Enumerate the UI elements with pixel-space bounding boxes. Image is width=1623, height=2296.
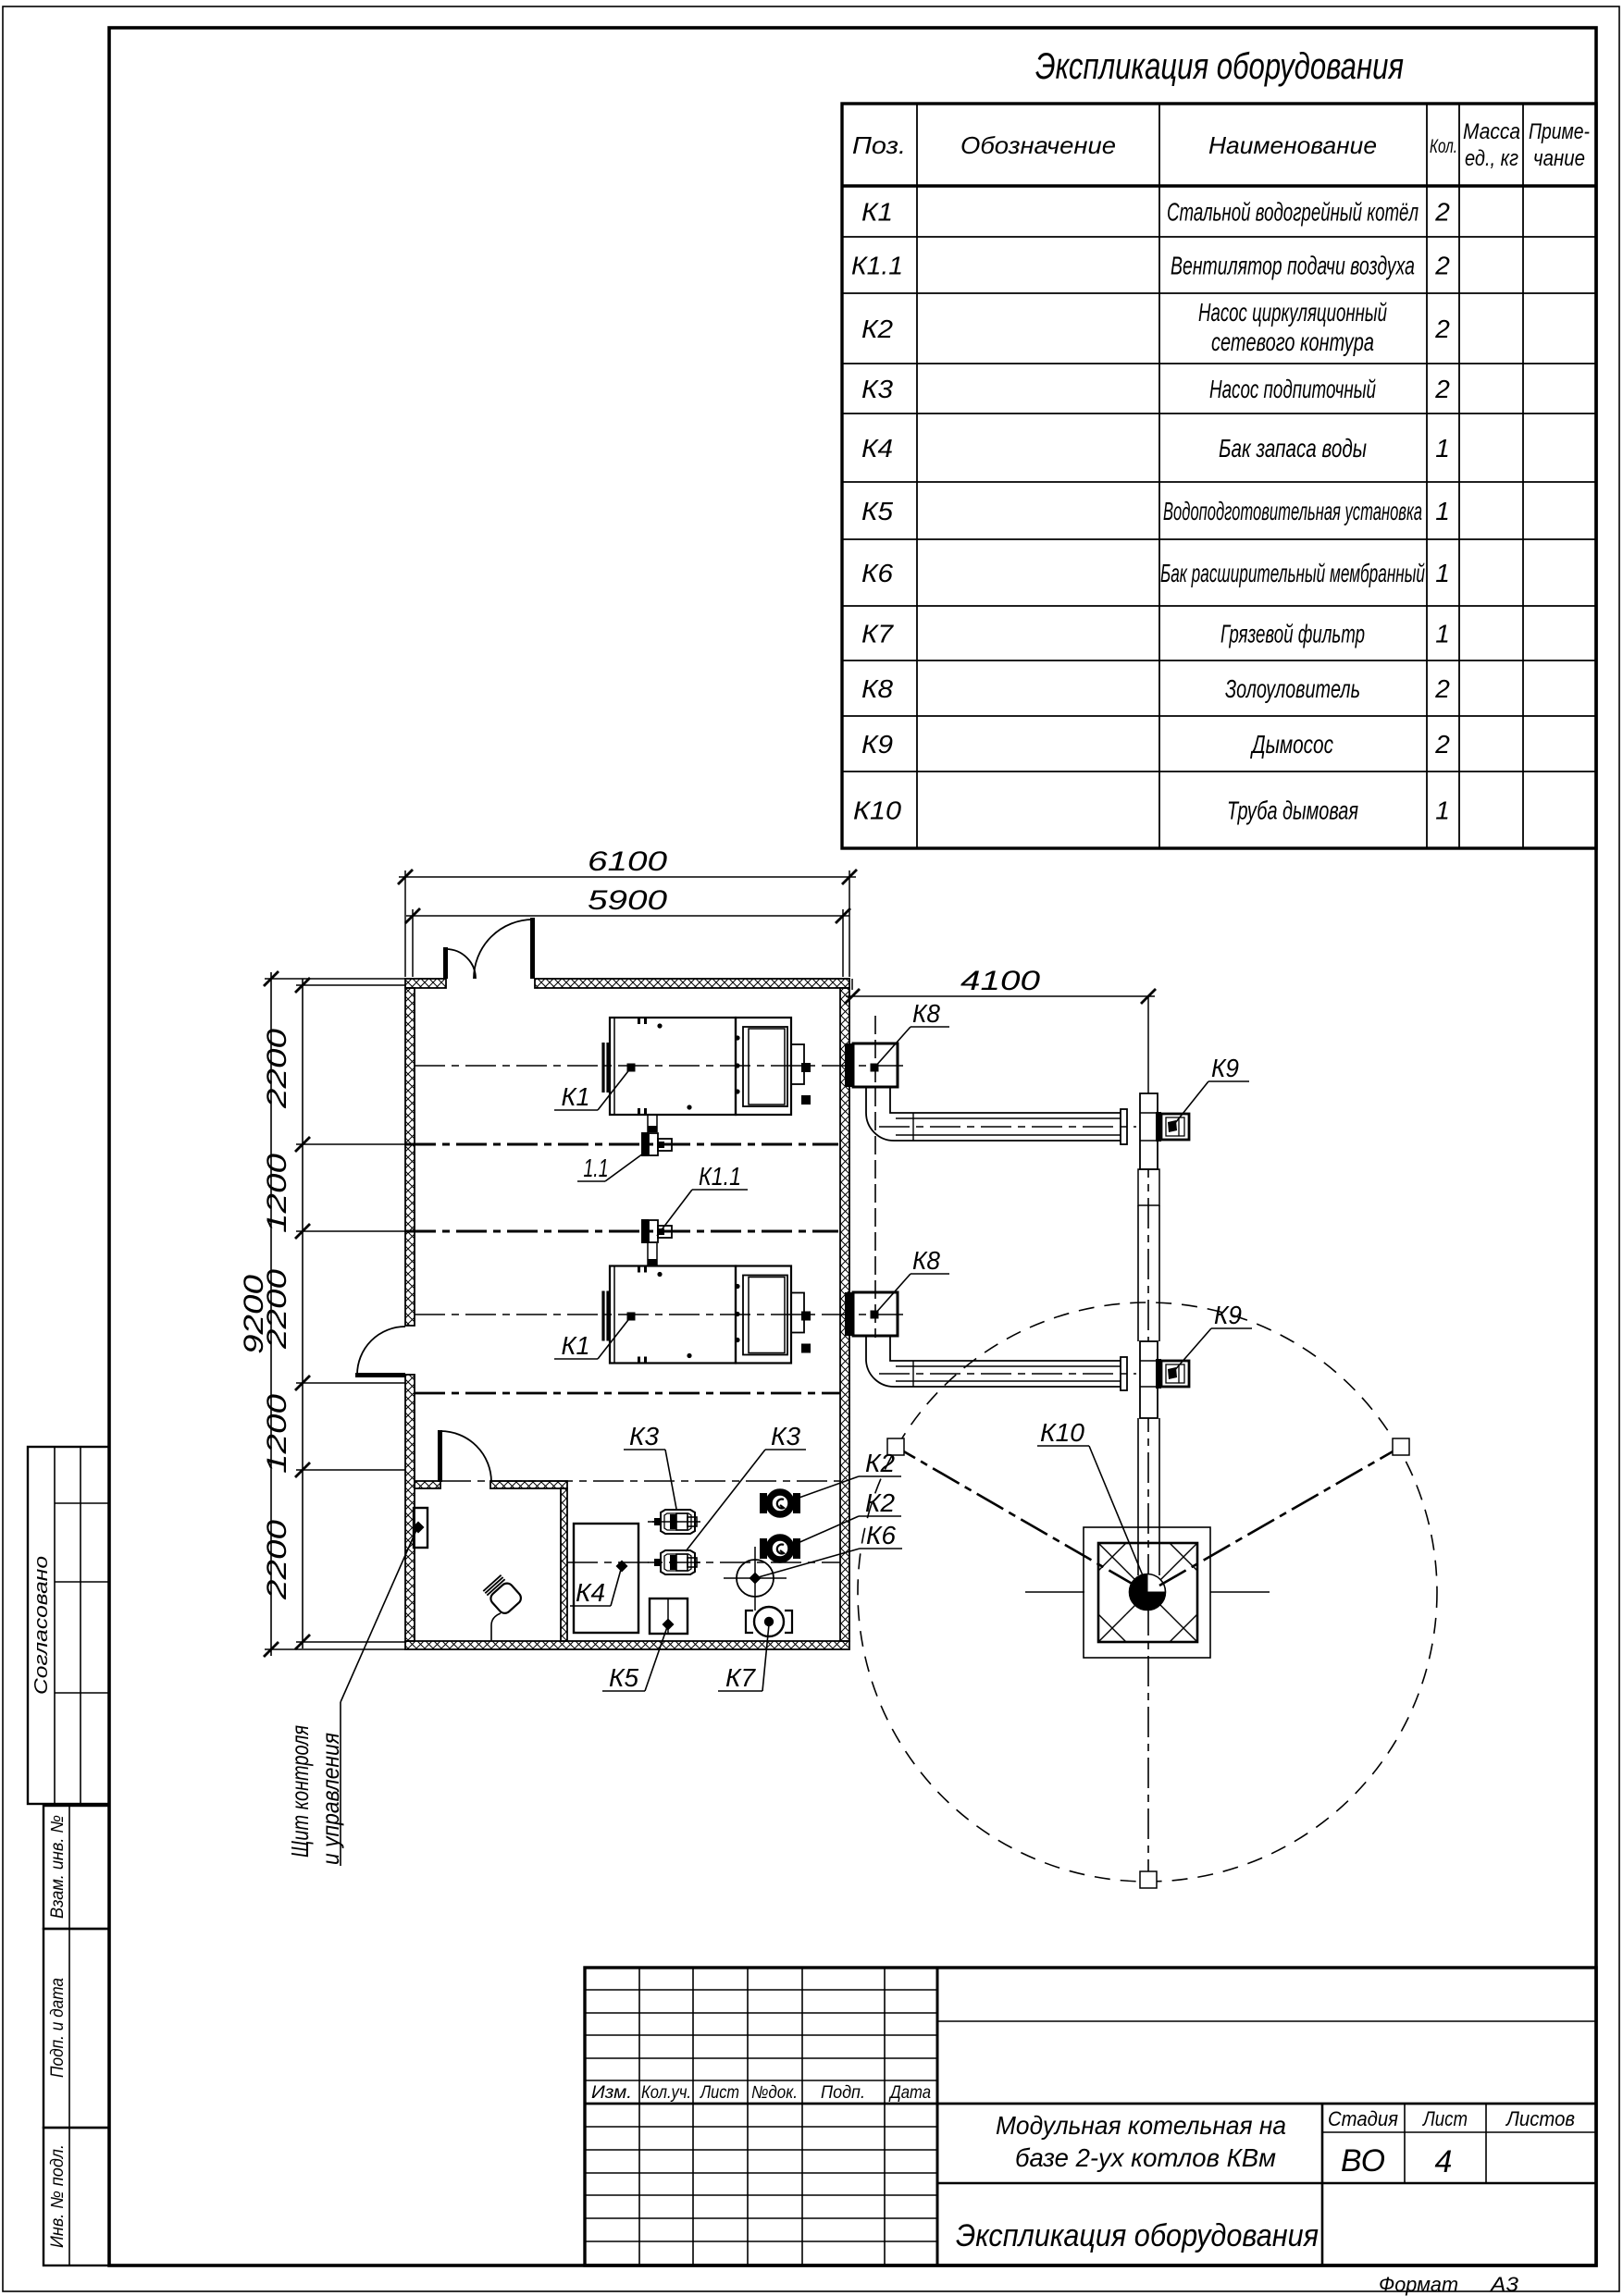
svg-text:К1.1: К1.1 (699, 1162, 741, 1191)
svg-text:К2: К2 (865, 1488, 895, 1517)
svg-text:К8: К8 (912, 1246, 940, 1275)
svg-text:Формат: Формат (1379, 2273, 1458, 2296)
svg-text:чание: чание (1533, 146, 1585, 171)
svg-text:1: 1 (1435, 434, 1450, 463)
svg-text:ВО: ВО (1341, 2143, 1385, 2179)
svg-text:Взам. инв. №: Взам. инв. № (48, 1815, 68, 1919)
svg-text:1200: 1200 (262, 1154, 292, 1233)
svg-text:К2: К2 (865, 1449, 895, 1477)
svg-text:К7: К7 (861, 620, 895, 648)
svg-text:Водоподготовительная установка: Водоподготовительная установка (1163, 497, 1422, 525)
svg-text:К8: К8 (861, 674, 893, 703)
svg-text:К5: К5 (861, 497, 893, 525)
svg-text:Согласовано: Согласовано (31, 1556, 52, 1695)
svg-text:Приме-: Приме- (1529, 119, 1590, 144)
svg-text:К10: К10 (853, 796, 901, 825)
svg-text:Золоуловитель: Золоуловитель (1225, 674, 1360, 703)
svg-text:Масса: Масса (1463, 119, 1520, 144)
svg-text:К4: К4 (861, 434, 893, 463)
svg-text:К2: К2 (861, 315, 893, 343)
svg-text:К9: К9 (1211, 1054, 1239, 1082)
svg-text:Труба дымовая: Труба дымовая (1227, 796, 1358, 825)
svg-text:сетевого контура: сетевого контура (1211, 327, 1374, 356)
svg-text:К7: К7 (725, 1663, 756, 1692)
svg-text:Вентилятор подачи воздуха: Вентилятор подачи воздуха (1171, 252, 1415, 280)
svg-text:Подп.: Подп. (821, 2083, 865, 2103)
svg-text:К1: К1 (861, 198, 893, 227)
svg-text:К10: К10 (1040, 1418, 1084, 1447)
svg-text:К9: К9 (861, 730, 893, 759)
svg-text:Кол.: Кол. (1430, 136, 1457, 157)
svg-text:2: 2 (1434, 252, 1450, 280)
svg-text:№док.: №док. (751, 2083, 798, 2103)
svg-text:Изм.: Изм. (591, 2083, 632, 2103)
svg-text:К9: К9 (1214, 1301, 1242, 1329)
svg-text:2: 2 (1434, 315, 1450, 343)
svg-text:6100: 6100 (588, 846, 667, 877)
svg-text:Насос подпиточный: Насос подпиточный (1209, 375, 1376, 403)
svg-text:Дымосос: Дымосос (1250, 730, 1333, 759)
svg-text:2: 2 (1434, 198, 1450, 227)
svg-text:Подп. и дата: Подп. и дата (48, 1978, 68, 2078)
svg-text:Экспликация оборудования: Экспликация оборудования (1035, 46, 1404, 87)
svg-text:К4: К4 (576, 1578, 605, 1607)
svg-text:2200: 2200 (262, 1269, 292, 1351)
svg-text:Щит контроля: Щит контроля (286, 1725, 314, 1858)
svg-text:5900: 5900 (588, 885, 667, 916)
svg-text:Насос циркуляционный: Насос циркуляционный (1198, 298, 1387, 327)
svg-text:Листов: Листов (1505, 2107, 1575, 2130)
svg-text:Лист: Лист (699, 2083, 739, 2103)
svg-text:А3: А3 (1489, 2273, 1519, 2296)
svg-text:Обозначение: Обозначение (960, 131, 1116, 159)
svg-text:К1: К1 (562, 1331, 590, 1360)
svg-text:базе 2-ух котлов КВм: базе 2-ух котлов КВм (1015, 2143, 1276, 2172)
svg-text:Экспликация оборудования: Экспликация оборудования (956, 2218, 1319, 2253)
svg-text:К3: К3 (771, 1422, 800, 1450)
svg-text:1: 1 (1435, 559, 1450, 587)
svg-text:2: 2 (1434, 375, 1450, 403)
svg-text:Бак запаса воды: Бак запаса воды (1219, 434, 1367, 463)
svg-text:2200: 2200 (262, 1520, 292, 1601)
svg-text:К3: К3 (861, 375, 893, 403)
svg-text:1: 1 (1435, 497, 1450, 525)
svg-text:К1: К1 (562, 1082, 590, 1111)
svg-text:К5: К5 (609, 1663, 638, 1692)
svg-text:1.1: 1.1 (584, 1154, 609, 1182)
svg-text:1: 1 (1435, 620, 1450, 648)
svg-text:Стадия: Стадия (1328, 2107, 1398, 2130)
svg-text:К6: К6 (861, 559, 893, 587)
svg-text:2: 2 (1434, 674, 1450, 703)
svg-text:Дата: Дата (888, 2083, 931, 2103)
svg-text:ед., кг: ед., кг (1465, 146, 1518, 171)
svg-text:К6: К6 (866, 1521, 896, 1549)
svg-text:Модульная котельная на: Модульная котельная на (996, 2111, 1286, 2140)
svg-text:2200: 2200 (262, 1029, 292, 1110)
svg-text:1: 1 (1435, 796, 1450, 825)
svg-text:Грязевой фильтр: Грязевой фильтр (1220, 620, 1365, 648)
svg-text:Стальной водогрейный котёл: Стальной водогрейный котёл (1167, 198, 1419, 227)
svg-text:Бак расширительный мембранный: Бак расширительный мембранный (1160, 559, 1425, 587)
svg-text:1200: 1200 (262, 1394, 292, 1474)
svg-text:4: 4 (1435, 2144, 1453, 2179)
svg-text:Лист: Лист (1421, 2107, 1468, 2130)
svg-text:К8: К8 (912, 999, 940, 1028)
svg-text:Поз.: Поз. (852, 131, 906, 159)
svg-text:К1.1: К1.1 (851, 252, 903, 280)
svg-text:Кол.уч.: Кол.уч. (641, 2083, 691, 2103)
svg-text:2: 2 (1434, 730, 1450, 759)
svg-text:К3: К3 (629, 1422, 659, 1450)
svg-text:Инв. № подл.: Инв. № подл. (48, 2144, 68, 2248)
svg-text:4100: 4100 (960, 966, 1040, 996)
svg-text:Наименование: Наименование (1208, 131, 1377, 159)
